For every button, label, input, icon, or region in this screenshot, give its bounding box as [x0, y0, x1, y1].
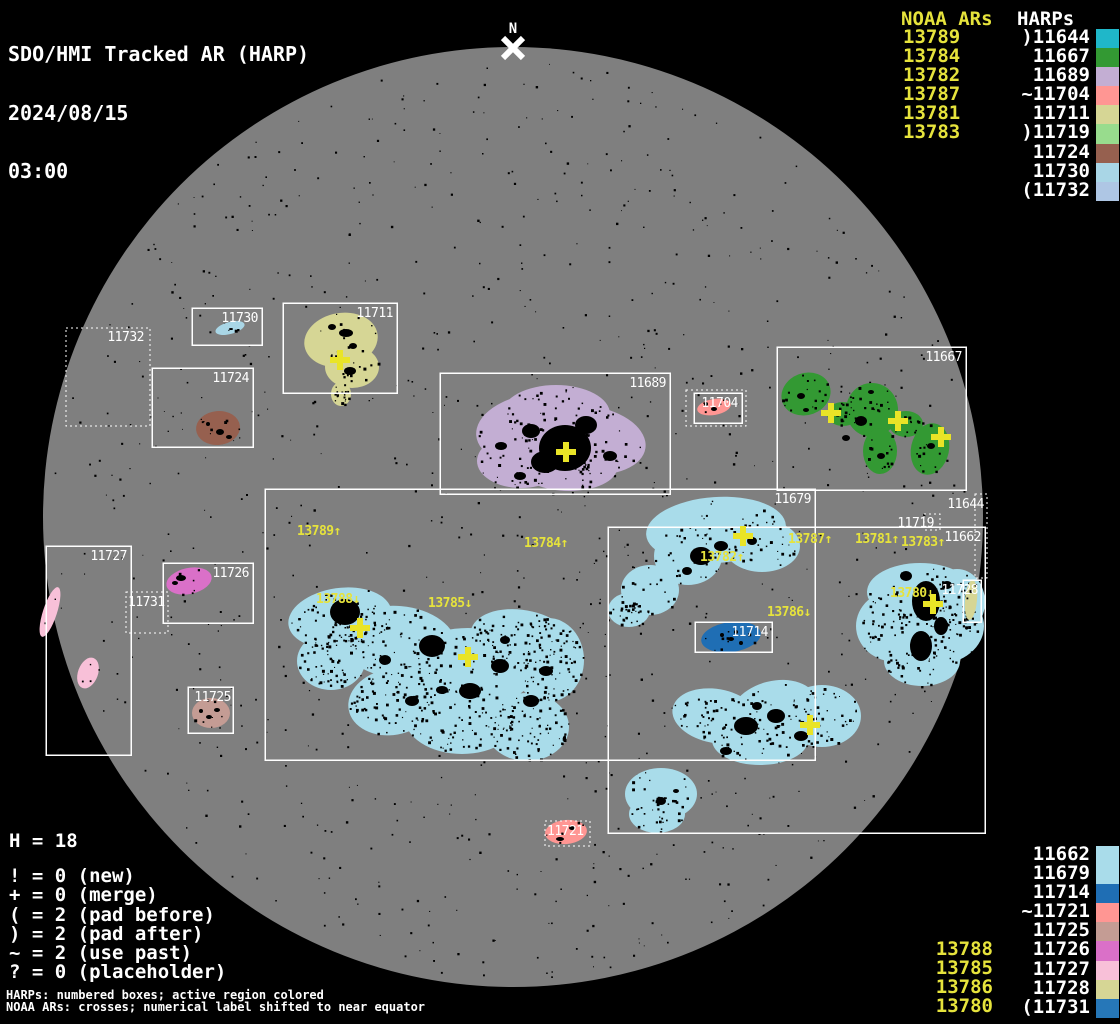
noaa-label-13787: 13787↑	[788, 532, 832, 547]
app-title: SDO/HMI Tracked AR (HARP)	[8, 45, 309, 65]
north-label: N	[509, 21, 517, 37]
harp-list-bottom: 116621167911714~117211172511726117271172…	[980, 845, 1090, 1017]
harp-box-label-11711: 11711	[356, 306, 393, 321]
harp-color-swatches-top	[1096, 29, 1119, 201]
harp-box-label-11727: 11727	[90, 549, 127, 564]
harp-color-swatch	[1096, 922, 1119, 941]
symbol-legend-line: ? = 0 (placeholder)	[9, 963, 226, 982]
harp-list-item: (11732	[980, 181, 1090, 200]
title-block: SDO/HMI Tracked AR (HARP) 2024/08/15 03:…	[8, 6, 309, 221]
harp-box-label-11689: 11689	[629, 376, 666, 391]
harp-color-swatch	[1096, 29, 1119, 48]
harp-color-swatch	[1096, 86, 1119, 105]
harp-box-label-11667: 11667	[925, 350, 962, 365]
harp-color-swatch	[1096, 124, 1119, 143]
harp-color-swatch	[1096, 999, 1119, 1018]
harp-color-swatch	[1096, 961, 1119, 980]
harp-box-label-11662: 11662	[944, 530, 981, 545]
harp-color-swatch	[1096, 941, 1119, 960]
date-label: 2024/08/15	[8, 104, 309, 124]
harp-box-label-11731: 11731	[128, 595, 165, 610]
harp-color-swatch	[1096, 144, 1119, 163]
harp-list-item: )11719	[980, 123, 1090, 142]
harp-box-label-11725: 11725	[194, 690, 231, 705]
footnote-line: NOAA ARs: crosses; numerical label shift…	[6, 1001, 425, 1013]
symbol-legend-line: ( = 2 (pad before)	[9, 906, 226, 925]
harp-count: H = 18	[9, 830, 78, 852]
noaa-label-13783: 13783↑	[901, 535, 945, 550]
harp-color-swatch	[1096, 865, 1119, 884]
harp-color-swatch	[1096, 48, 1119, 67]
harp-color-swatch	[1096, 105, 1119, 124]
harp-box-label-11728: 11728	[941, 583, 978, 598]
noaa-ar-list-item: 13783	[903, 123, 960, 142]
symbol-legend-line: + = 0 (merge)	[9, 886, 226, 905]
noaa-label-13785: 13785↓	[428, 596, 472, 611]
noaa-ar-list-top: 137891378413782137871378113783	[903, 28, 960, 143]
harp-box-label-11679: 11679	[774, 492, 811, 507]
noaa-ar-list-bottom: 13788137851378613780	[936, 940, 993, 1016]
harp-box-label-11721: 11721	[547, 824, 584, 839]
harp-color-swatch	[1096, 163, 1119, 182]
harp-list-top: )116441166711689~1170411711)117191172411…	[980, 28, 1090, 200]
harp-box-label-11714: 11714	[731, 625, 768, 640]
harp-box-label-11730: 11730	[221, 311, 258, 326]
noaa-label-13784: 13784↑	[524, 536, 568, 551]
harp-list-item: (11731	[980, 998, 1090, 1017]
sdo-hmi-harp-visualization: 1173211730117111172411689117041166711679…	[0, 0, 1120, 1024]
noaa-label-13780: 13780↓	[890, 586, 934, 601]
harp-box-label-11724: 11724	[212, 371, 249, 386]
symbol-legend: ! = 0 (new)+ = 0 (merge)( = 2 (pad befor…	[9, 867, 226, 983]
harp-box-label-11726: 11726	[212, 566, 249, 581]
noaa-label-13781: 13781↑	[855, 532, 899, 547]
harp-color-swatch	[1096, 846, 1119, 865]
harp-list-item: 11728	[980, 979, 1090, 998]
harp-color-swatch	[1096, 884, 1119, 903]
harp-color-swatches-bottom	[1096, 846, 1119, 1018]
harp-list-item: 11726	[980, 940, 1090, 959]
noaa-label-13786: 13786↓	[767, 605, 811, 620]
harp-list-item: 11730	[980, 162, 1090, 181]
harp-color-swatch	[1096, 67, 1119, 86]
time-label: 03:00	[8, 162, 309, 182]
noaa-label-13782: 13782↑	[700, 550, 744, 565]
harp-color-swatch	[1096, 182, 1119, 201]
noaa-ar-list-item: 13780	[936, 997, 993, 1016]
harp-box-label-11644: 11644	[947, 497, 984, 512]
noaa-label-13788: 13788↓	[316, 592, 360, 607]
noaa-label-13789: 13789↑	[297, 524, 341, 539]
harp-list-item: 11727	[980, 960, 1090, 979]
harp-box-label-11719: 11719	[897, 516, 934, 531]
harp-color-swatch	[1096, 980, 1119, 999]
footnotes: HARPs: numbered boxes; active region col…	[6, 989, 425, 1014]
harp-list-item: 11724	[980, 143, 1090, 162]
harp-color-swatch	[1096, 903, 1119, 922]
harp-box-label-11732: 11732	[107, 330, 144, 345]
harp-box-label-11704: 11704	[701, 396, 738, 411]
